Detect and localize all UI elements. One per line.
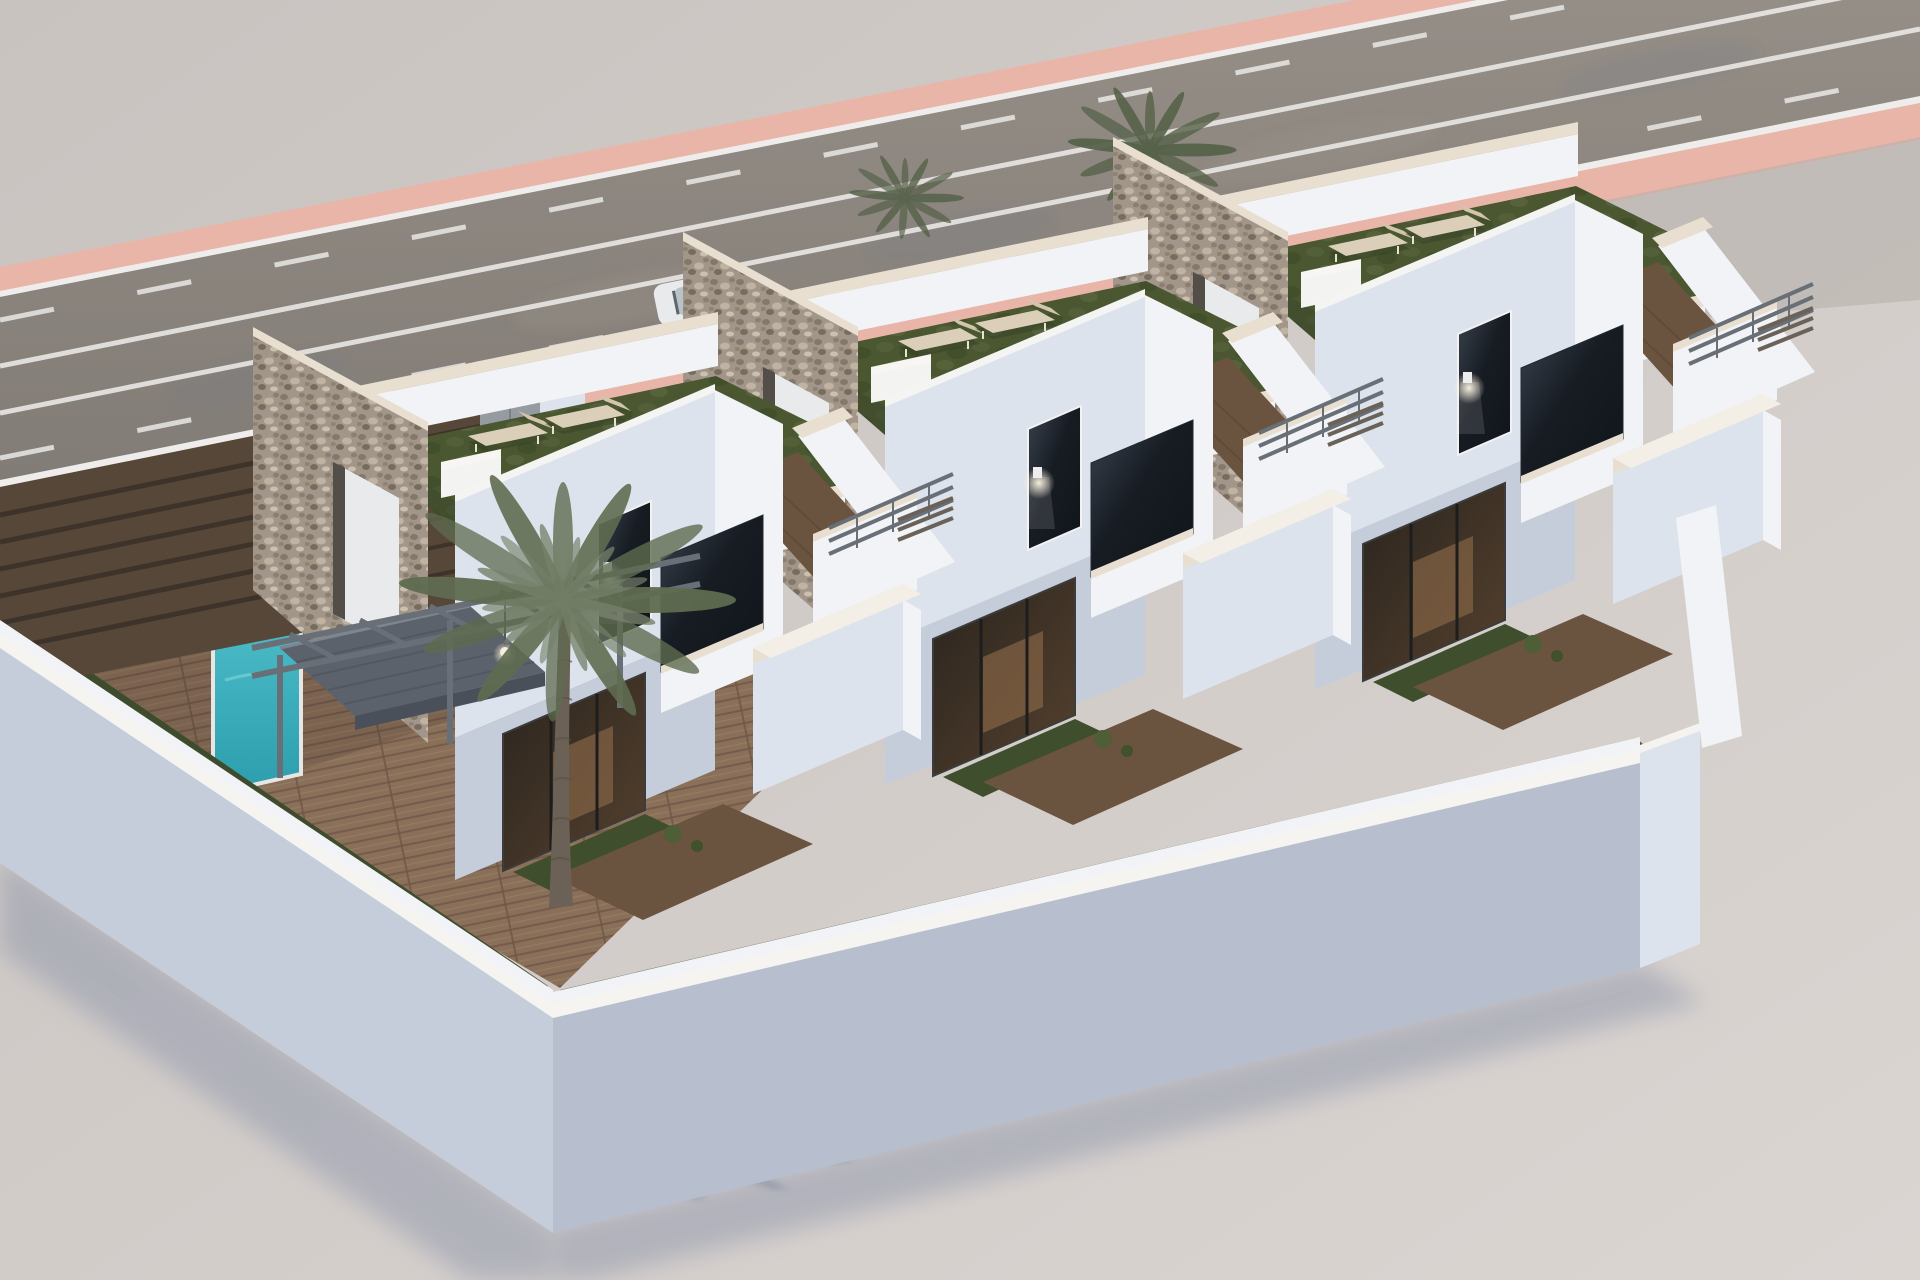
architectural-render xyxy=(0,0,1920,1280)
wall-east-return xyxy=(1640,729,1700,968)
